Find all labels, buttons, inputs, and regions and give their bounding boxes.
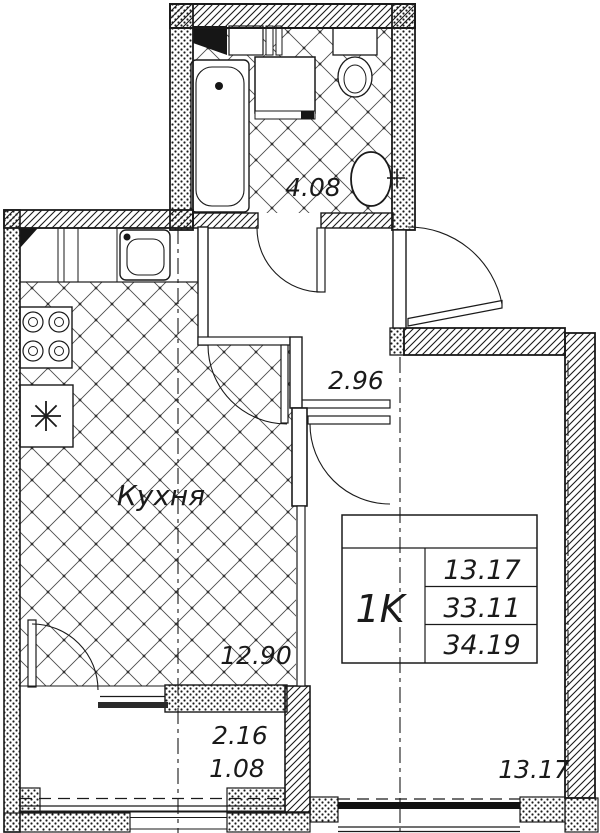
bathtub [191,60,249,212]
partition-hall-kitchen [290,337,302,408]
window-frame [338,802,520,809]
door-leaf [308,416,390,424]
bathroom-area-label: 4.08 [285,173,341,202]
door-swing-arc [408,227,502,304]
door-leaf [28,620,36,687]
wall-post [20,788,40,813]
entrance-door [408,227,502,326]
snowflake-icon [31,401,61,431]
counter-outline [20,228,198,282]
kitchen-counter [20,228,198,282]
apartment-type-label: 1K [355,587,407,631]
hallway-area-label: 2.96 [328,366,384,395]
window-pier [520,797,565,822]
wall-segment [565,333,595,798]
room-area-label: 13.17 [498,755,570,784]
kitchen-area-label: 12.90 [220,641,292,670]
kitchen-floor [20,228,296,686]
wall-post [227,788,285,813]
wall-corner [565,798,598,832]
room-window [338,799,520,832]
wall-segment [285,686,310,812]
doorway-threshold [198,337,290,345]
wall-segment [193,213,258,228]
bathroom-door [257,228,325,292]
wall-post [390,328,404,355]
washing-machine [255,57,315,119]
wall-segment [4,210,20,832]
door-leaf [281,345,288,423]
partition-kitchen-room [297,506,305,686]
door-swing-arc [310,424,390,504]
wall-segment [170,4,193,230]
toilet-tank [333,28,377,55]
balcony-area-reduced-label: 1.08 [209,754,265,783]
doorway-threshold [290,400,390,408]
wall-segment [321,213,393,228]
partition-kitchen-hall [198,227,208,345]
floor-plan-page: 4.08 2.96 Кухня 12.90 2.16 1.08 13.17 1K… [0,0,600,833]
partition-kitchen-room [292,408,307,506]
bathtub-drain-icon [215,82,223,90]
floor-plan-svg: 4.08 2.96 Кухня 12.90 2.16 1.08 13.17 1K… [0,0,600,833]
wall-segment [4,210,193,228]
wall-segment [170,4,415,28]
door-leaf [317,228,325,292]
wash-basin-bowl [351,152,391,206]
room-door [308,416,390,504]
window-pier [310,797,338,822]
stove [20,307,72,368]
wall-segment [165,685,287,712]
bathroom-cabinet [229,26,263,55]
wall-segment [392,4,415,230]
door-leaf [408,301,502,327]
washing-machine-control-icon [301,111,314,119]
living-area-value: 13.17 [443,555,520,586]
kitchen-name-label: Кухня [117,479,205,512]
balcony-area-full-label: 2.16 [212,721,268,750]
wall-segment [404,328,565,355]
total-area-value: 34.19 [443,630,520,661]
wall-segment [4,813,130,832]
partition-entry [393,230,406,328]
refrigerator [20,385,73,447]
area-no-balcony-value: 33.11 [443,593,520,624]
washing-machine-body [255,57,315,113]
door-swing-arc [257,228,321,292]
sink-tap-icon [124,234,131,241]
bathroom-shelf [276,26,282,55]
bathroom-shelf [266,26,273,55]
kitchen-sink [120,230,170,280]
window-sill [98,702,168,708]
toilet-bowl [338,57,372,97]
wall-segment [227,813,310,832]
kitchen-window [20,686,168,708]
